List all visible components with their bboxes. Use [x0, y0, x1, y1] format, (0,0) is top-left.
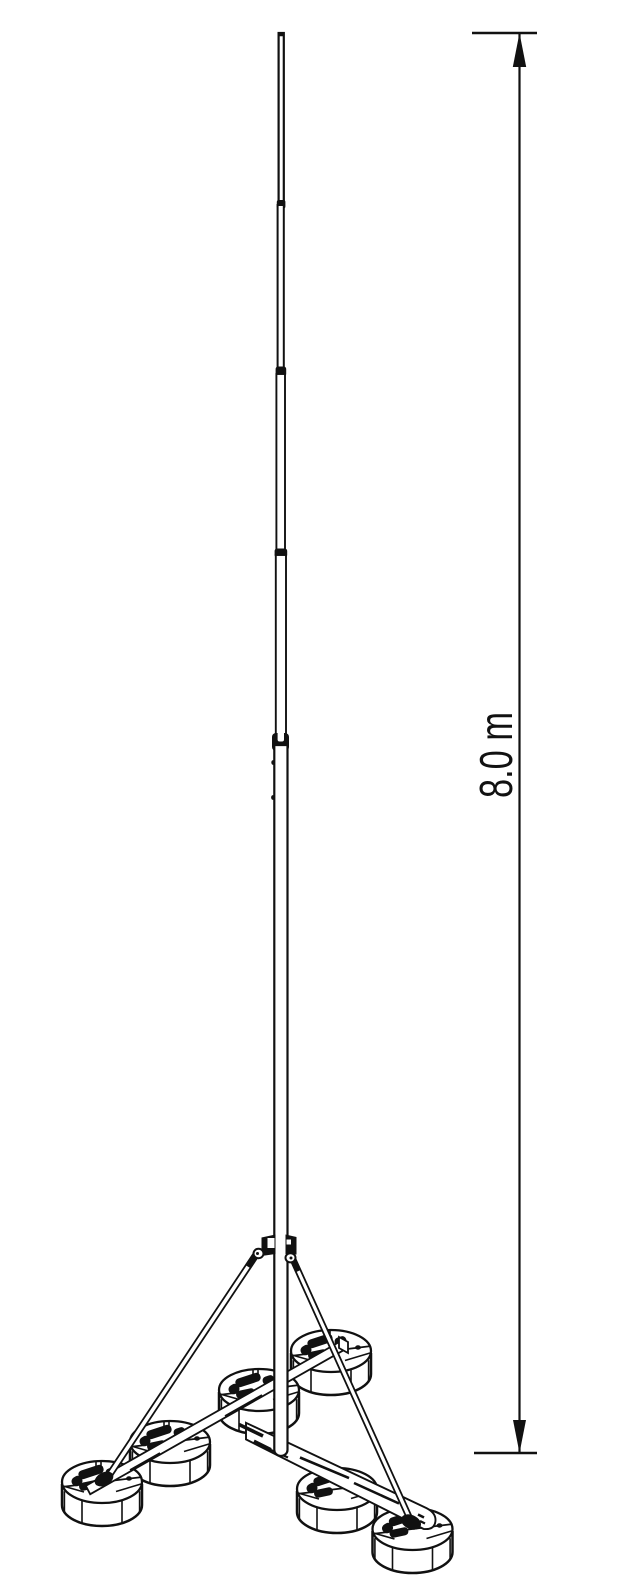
svg-text:8.0 m: 8.0 m: [470, 712, 522, 798]
